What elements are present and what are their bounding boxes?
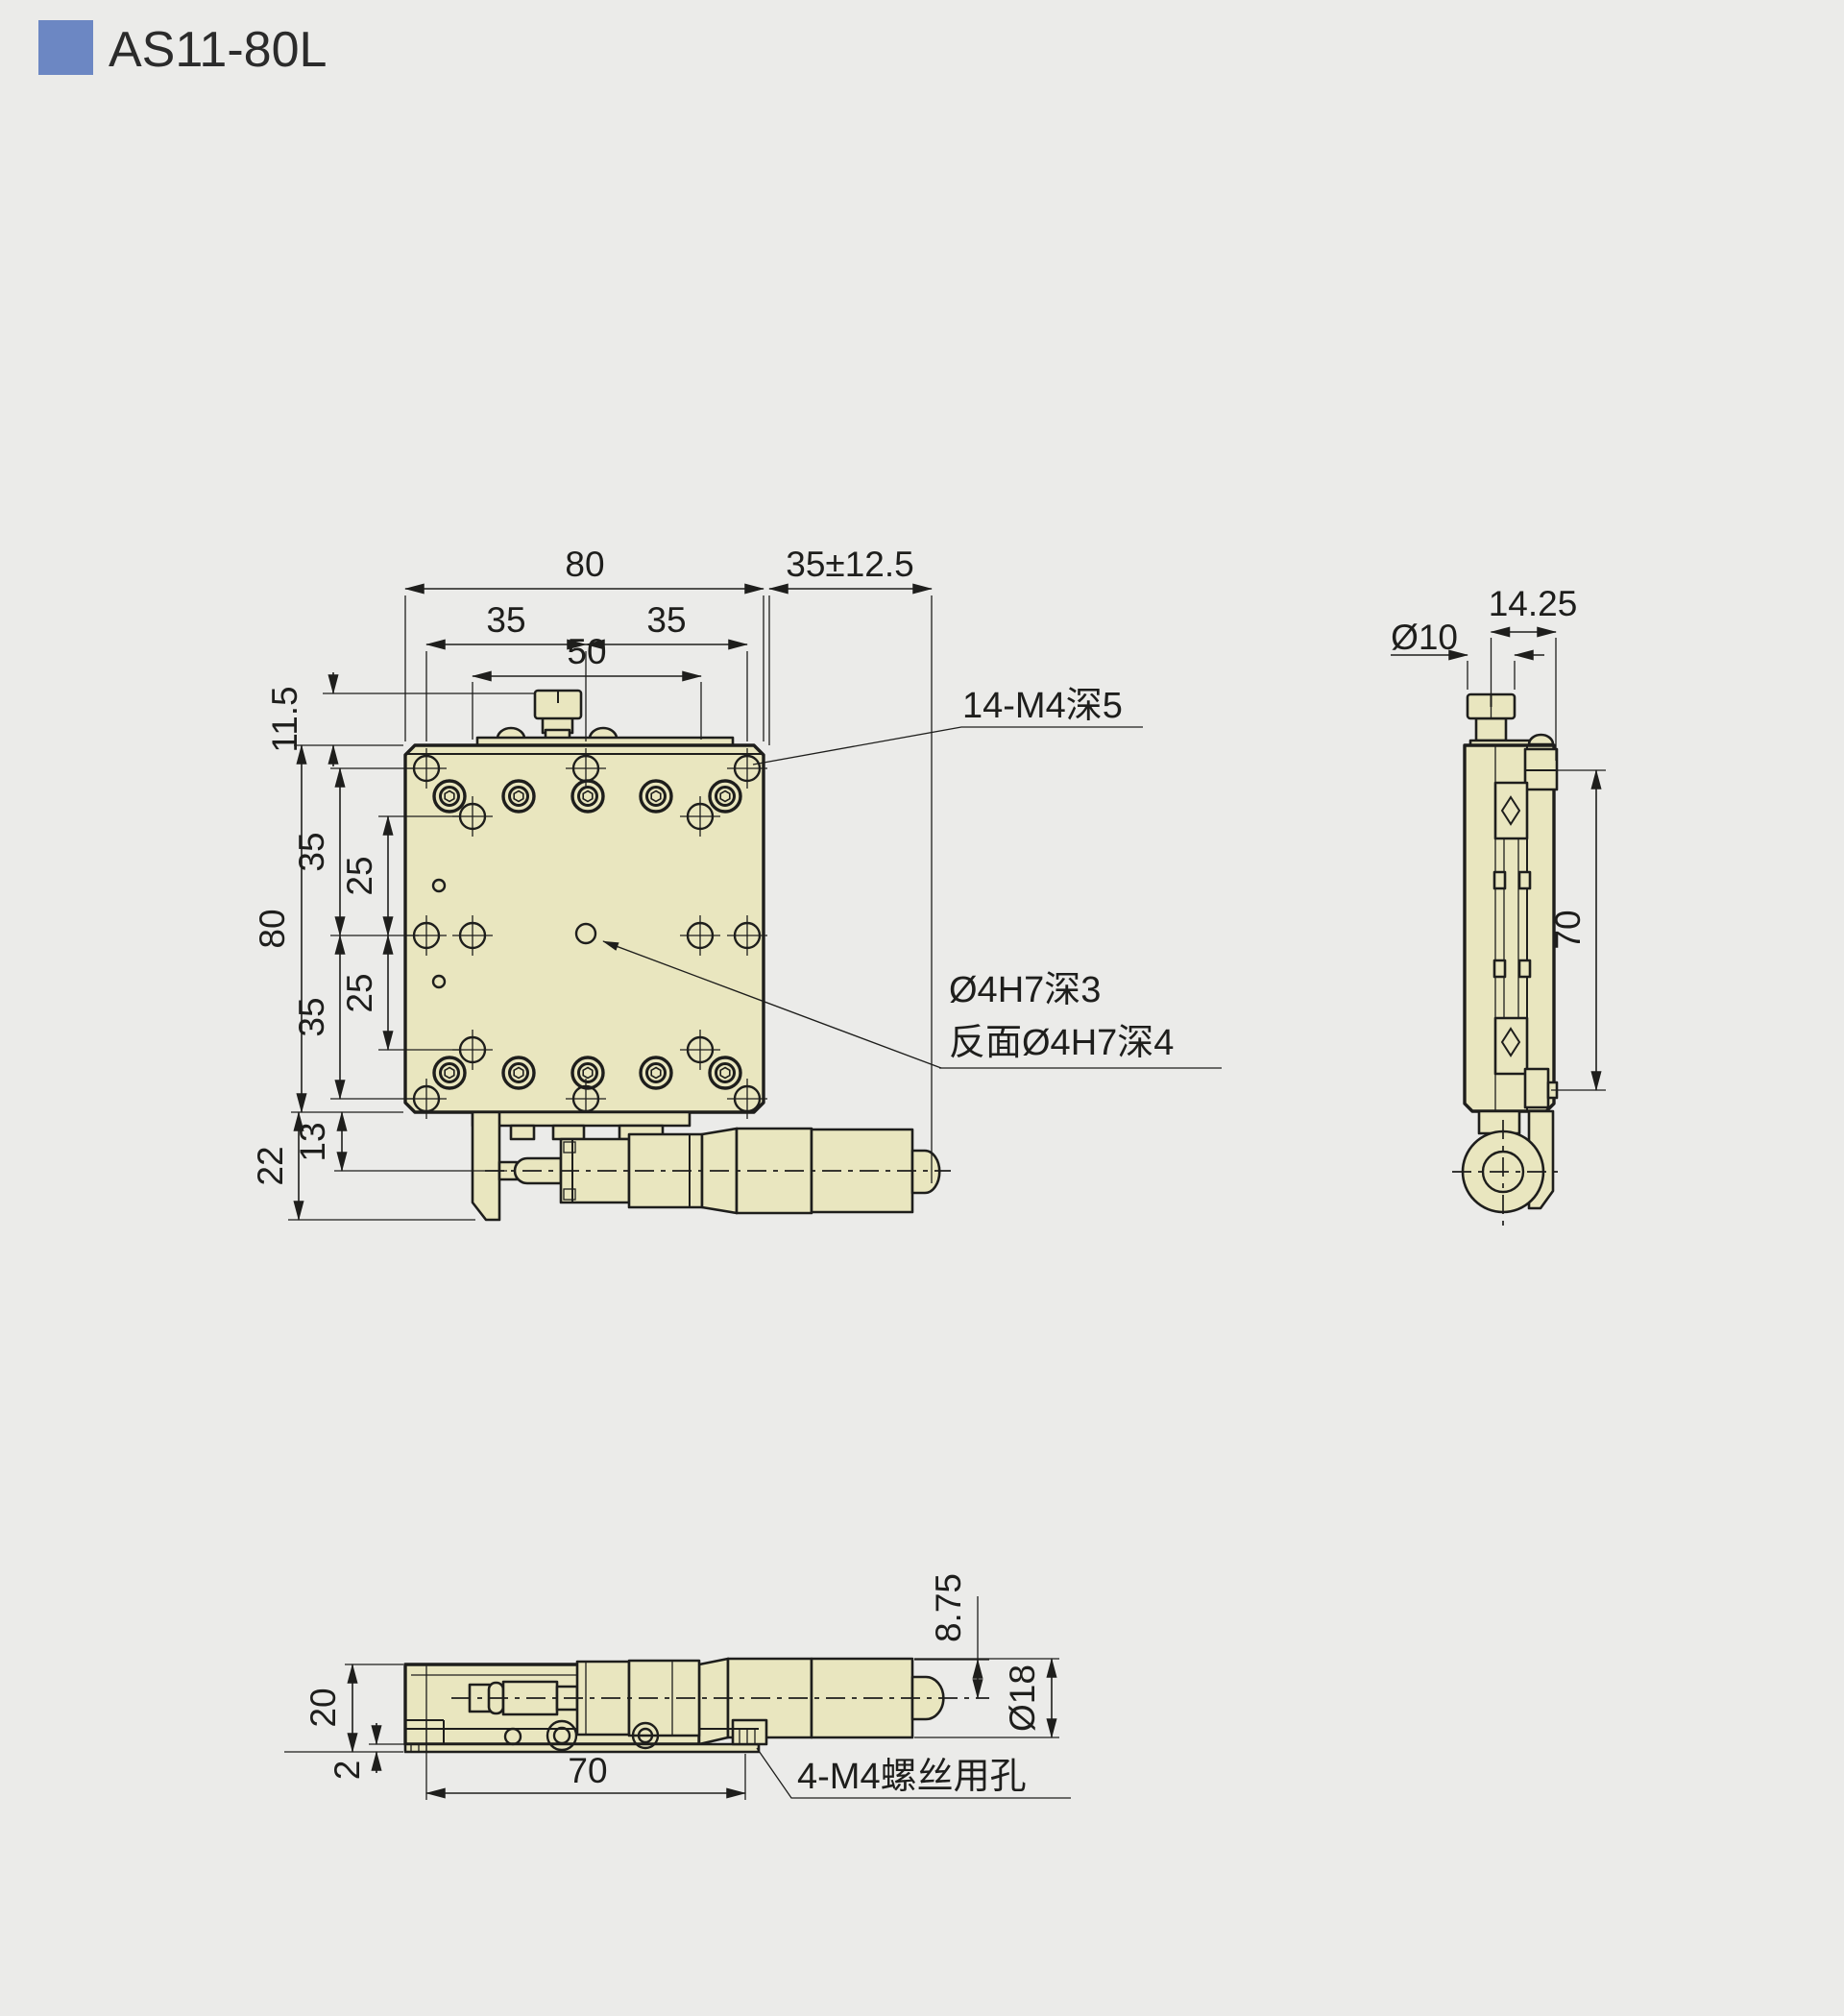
side-clamp-knob xyxy=(1468,694,1530,746)
dim-hole-pitch-50: 50 xyxy=(473,632,701,740)
svg-text:14-M4深5: 14-M4深5 xyxy=(962,686,1123,726)
svg-text:4-M4螺丝用孔: 4-M4螺丝用孔 xyxy=(797,1757,1027,1797)
side-lower-bracket xyxy=(1525,1069,1548,1107)
bottom-view: 20 2 70 8.75 Ø18 4-M4螺丝用孔 xyxy=(284,1573,1071,1800)
technical-drawing: AS11-80L xyxy=(0,0,1844,2016)
svg-text:25: 25 xyxy=(340,856,379,895)
svg-text:35±12.5: 35±12.5 xyxy=(786,545,913,584)
svg-text:35: 35 xyxy=(486,600,525,640)
svg-text:8.75: 8.75 xyxy=(929,1573,968,1642)
dome-screw xyxy=(1529,735,1553,744)
svg-text:2: 2 xyxy=(328,1761,367,1781)
note-tapped-holes: 14-M4深5 xyxy=(753,686,1143,765)
front-view: 80 35±12.5 35 35 50 11.5 xyxy=(251,545,1222,1220)
svg-text:Ø4H7深3: Ø4H7深3 xyxy=(949,970,1101,1010)
side-view: Ø10 14.25 70 xyxy=(1391,584,1606,1227)
svg-text:Ø10: Ø10 xyxy=(1391,618,1458,657)
svg-text:11.5: 11.5 xyxy=(265,686,304,752)
page-title: AS11-80L xyxy=(109,22,327,78)
svg-text:80: 80 xyxy=(565,545,604,584)
svg-text:25: 25 xyxy=(340,973,379,1012)
dim-base-heights: 13 22 xyxy=(251,1112,507,1220)
svg-text:70: 70 xyxy=(568,1751,607,1790)
svg-text:14.25: 14.25 xyxy=(1489,584,1578,623)
svg-text:70: 70 xyxy=(1548,910,1588,949)
dim-travel: 35±12.5 xyxy=(769,545,932,1183)
svg-text:80: 80 xyxy=(253,909,292,948)
svg-text:35: 35 xyxy=(292,832,331,871)
dim-bottom-height: 20 xyxy=(284,1664,403,1752)
title-block: AS11-80L xyxy=(38,20,327,78)
bottom-right-foot xyxy=(733,1720,766,1744)
side-clamp-lower xyxy=(1495,1018,1527,1074)
svg-text:Ø18: Ø18 xyxy=(1003,1664,1042,1732)
svg-text:35: 35 xyxy=(646,600,686,640)
drawing-page: AS11-80L xyxy=(0,0,1844,2016)
svg-text:50: 50 xyxy=(567,632,606,671)
svg-text:反面Ø4H7深4: 反面Ø4H7深4 xyxy=(949,1023,1174,1063)
bottom-taper xyxy=(699,1659,728,1744)
svg-text:35: 35 xyxy=(292,997,331,1036)
note-screw-holes: 4-M4螺丝用孔 xyxy=(757,1748,1071,1798)
section-marker xyxy=(38,20,93,75)
front-micrometer-assembly xyxy=(473,1112,951,1220)
clamp-knob xyxy=(535,691,581,740)
svg-text:20: 20 xyxy=(303,1688,343,1727)
dim-knob-dia: Ø10 xyxy=(1391,618,1544,690)
svg-text:22: 22 xyxy=(251,1146,290,1185)
side-clamp-upper xyxy=(1495,783,1527,838)
side-base-bracket xyxy=(1479,1111,1519,1133)
